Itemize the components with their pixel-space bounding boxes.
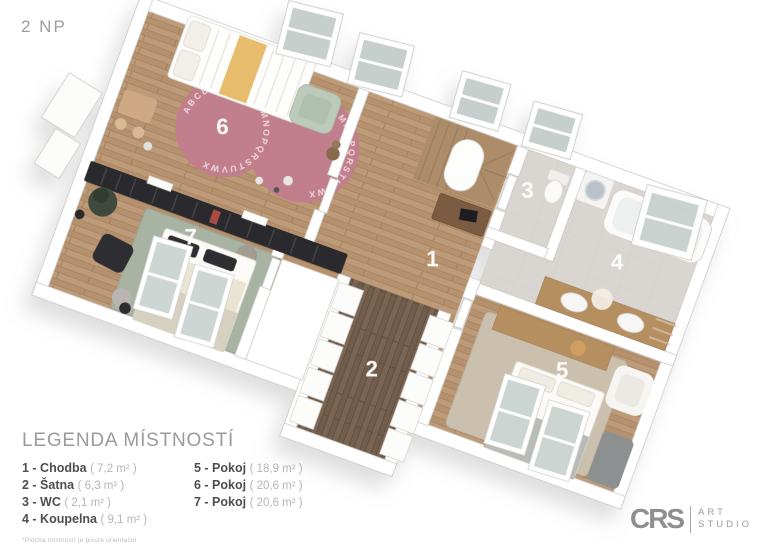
legend-column-2: 5 - Pokoj ( 18,9 m² ) 6 - Pokoj ( 20,6 m…: [194, 460, 342, 528]
room-label-4: 4: [611, 249, 624, 274]
legend-title: LEGENDA MÍSTNOSTÍ: [22, 430, 342, 452]
logo-brand: CRS: [630, 505, 683, 533]
room-label-2: 2: [365, 356, 377, 381]
room-label-5: 5: [556, 358, 568, 383]
legend-column-1: 1 - Chodba ( 7,2 m² ) 2 - Šatna ( 6,3 m²…: [22, 460, 170, 528]
room-label-7: 7: [184, 224, 196, 249]
studio-logo: CRS ART STUDIO: [630, 505, 752, 533]
legend-item-4: 4 - Koupelna ( 9,1 m² ): [22, 511, 170, 528]
room-label-6: 6: [216, 114, 228, 139]
legend-item-6: 6 - Pokoj ( 20,6 m² ): [194, 477, 342, 494]
legend-item-3: 3 - WC ( 2,1 m² ): [22, 494, 170, 511]
logo-divider: [690, 506, 691, 533]
logo-wordmark: ART STUDIO: [698, 507, 752, 531]
page: { "page": { "floor_label": "2 NP" }, "le…: [0, 0, 768, 543]
legend-item-1: 1 - Chodba ( 7,2 m² ): [22, 460, 170, 477]
legend-item-2: 2 - Šatna ( 6,3 m² ): [22, 477, 170, 494]
legend: LEGENDA MÍSTNOSTÍ 1 - Chodba ( 7,2 m² ) …: [22, 430, 342, 544]
room-label-1: 1: [426, 246, 438, 271]
room-label-3: 3: [521, 178, 533, 203]
legend-item-5: 5 - Pokoj ( 18,9 m² ): [194, 460, 342, 477]
legend-item-7: 7 - Pokoj ( 20,6 m² ): [194, 494, 342, 511]
